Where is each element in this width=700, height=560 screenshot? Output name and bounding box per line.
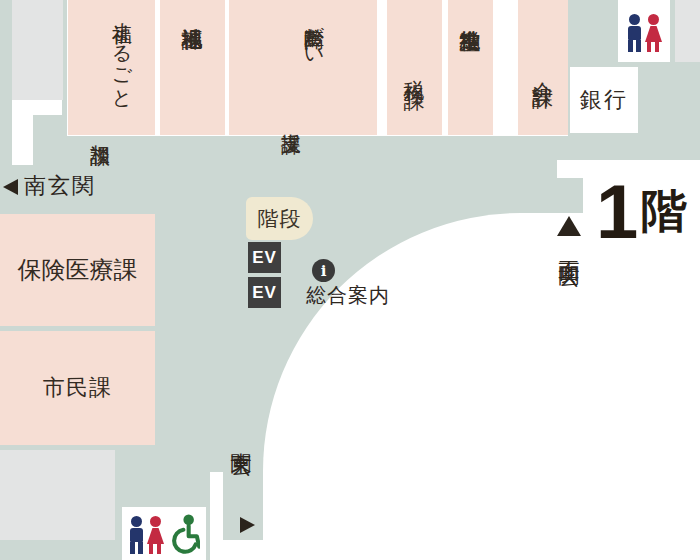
entrance-south: 南玄関 [3,175,96,197]
woman-head [150,516,161,527]
woman-icon [147,516,163,554]
entrance-south-label: 南玄関 [24,175,96,197]
elevator-box-2: EV [248,277,281,308]
room-accounting: 会計課 [518,0,568,135]
man-icon [626,14,642,52]
info-desk-label: 総合案内 [306,285,390,305]
room-label: 会計課 [533,62,554,74]
restroom-top [618,0,670,62]
floor-number: 1 [596,174,638,250]
room-label: 相談課 [91,129,111,135]
elevator-label: EV [252,283,277,303]
man-head [131,516,142,527]
notch-left-vertical [12,100,33,165]
info-symbol: i [321,262,327,280]
room-tax: 税務課 [387,0,442,135]
restroom-bottom [122,507,206,560]
room-label: 福祉まるごと [113,0,133,135]
room-label: 地域福祉課 [182,0,203,135]
gap-east-vestibule-bottom [223,540,263,560]
entrance-east-label: 東玄関 [231,436,252,439]
room-label: 保険医療課 [18,258,138,282]
gap-east-vestibule-left [210,472,223,560]
room-label: 支援課 [282,118,302,135]
room-label: 納税推進室 [460,0,481,135]
gray-block-top-left [12,0,63,100]
arrow-left-icon [3,179,18,195]
floor-number-suffix: 階 [641,188,687,234]
man-icon [128,516,144,554]
elevator-box-1: EV [248,242,281,273]
room-welfare-consultation: 相談課 福祉まるごと [68,0,155,135]
man-head [629,14,640,25]
entrance-main-label: 正面玄関 [559,244,580,252]
room-insurance-medical: 保険医療課 [0,214,155,326]
gray-block-bottom-left [0,450,115,540]
room-elderly-disability-support: 支援課 高齢障がい [229,0,377,135]
man-torso [130,528,143,542]
arrow-right-icon [240,517,255,533]
woman-dress [147,528,164,544]
elevator-label: EV [252,248,277,268]
man-torso [628,26,641,40]
room-citizen: 市民課 [0,331,155,445]
room-regional-welfare: 地域福祉課 [160,0,225,135]
stairs-label: 階段 [258,205,302,233]
room-label: 高齢障がい [305,0,325,135]
room-tax-promotion: 納税推進室 [448,0,493,135]
woman-icon [645,14,661,52]
wheelchair-icon [168,514,200,556]
woman-dress [645,26,662,42]
room-label: 税務課 [404,58,425,78]
arrow-up-icon [557,216,581,236]
bank-box: 銀行 [570,67,638,133]
info-icon: i [312,259,335,282]
room-label: 市民課 [43,377,112,399]
woman-head [648,14,659,25]
floor-map-1f: 相談課 福祉まるごと 地域福祉課 支援課 高齢障がい 税務課 納税推進室 会計課… [0,0,700,560]
bank-label: 銀行 [580,89,628,111]
stairs-tag: 階段 [246,197,313,240]
gray-block-top-right [675,0,700,62]
